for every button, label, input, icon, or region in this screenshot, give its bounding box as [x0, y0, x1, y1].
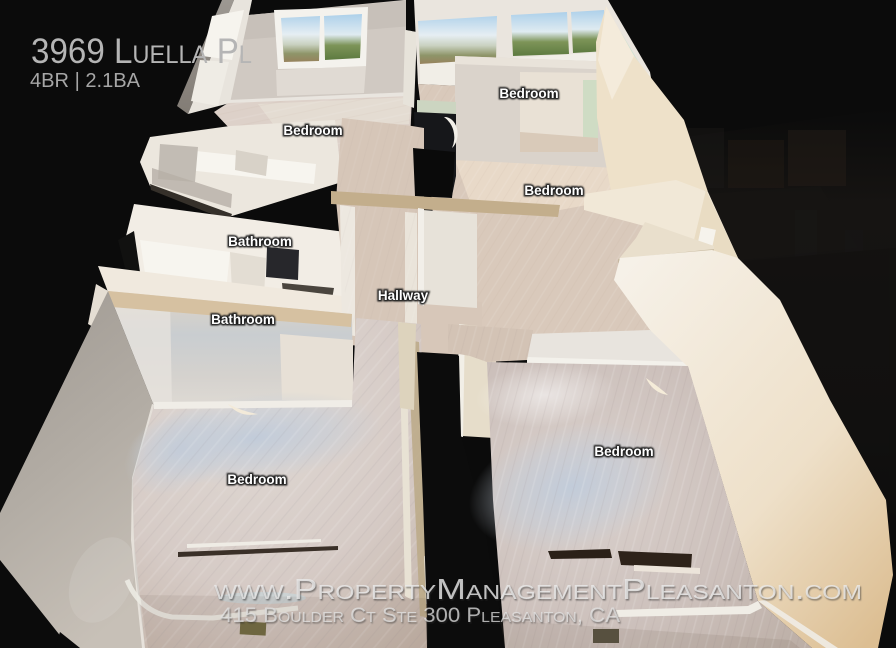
svg-text:415 Boulder Ct Ste 300 Pleasan: 415 Boulder Ct Ste 300 Pleasanton, CA: [220, 604, 620, 627]
svg-text:Bedroom: Bedroom: [283, 123, 342, 138]
svg-text:4BR | 2.1BA: 4BR | 2.1BA: [30, 70, 141, 92]
svg-text:www.PropertyManagementPleasant: www.PropertyManagementPleasanton.com: [214, 574, 862, 606]
svg-text:Bathroom: Bathroom: [228, 234, 292, 249]
svg-text:Bedroom: Bedroom: [524, 183, 583, 198]
svg-text:Bedroom: Bedroom: [499, 86, 558, 101]
svg-text:Bathroom: Bathroom: [211, 312, 275, 327]
svg-text:Bedroom: Bedroom: [227, 472, 286, 487]
svg-text:Bedroom: Bedroom: [594, 444, 653, 459]
svg-text:Hallway: Hallway: [378, 288, 429, 303]
svg-text:3969 Luella Pl: 3969 Luella Pl: [31, 32, 252, 71]
